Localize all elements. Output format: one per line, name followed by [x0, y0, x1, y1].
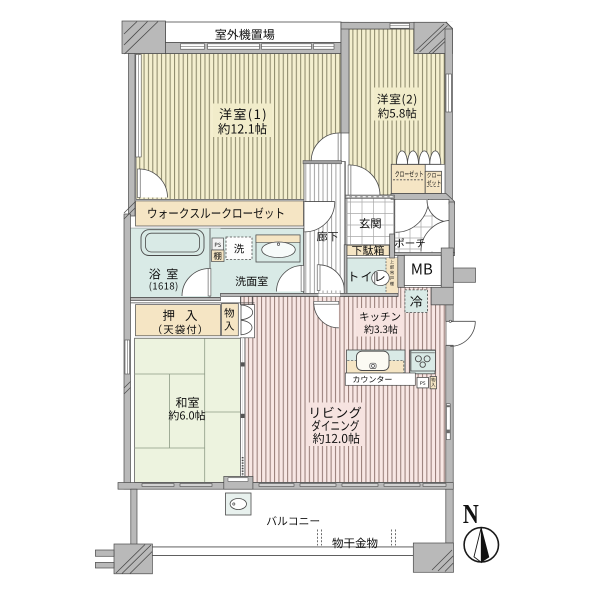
svg-text:N: N — [463, 500, 479, 530]
